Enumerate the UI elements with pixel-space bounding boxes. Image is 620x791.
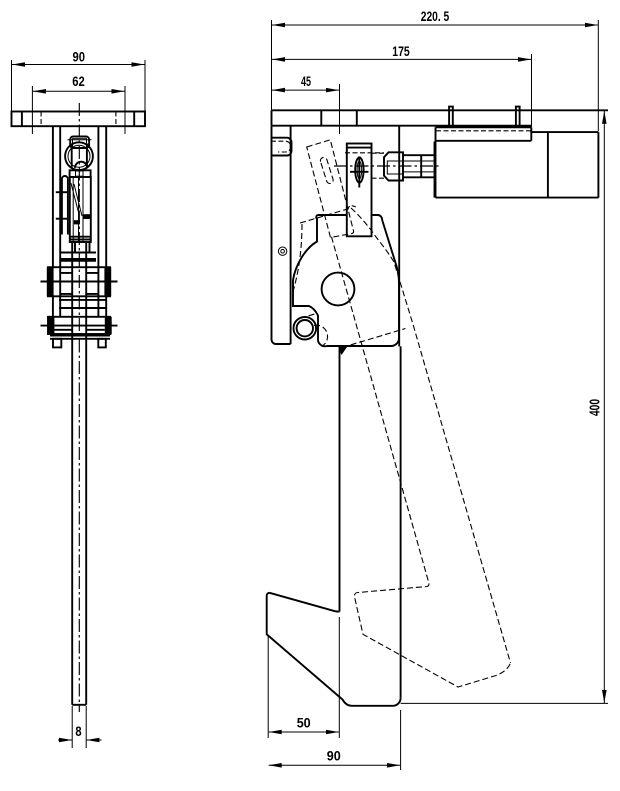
- svg-text:400: 400: [587, 399, 604, 416]
- svg-text:175: 175: [392, 43, 410, 59]
- svg-text:8: 8: [75, 723, 81, 739]
- svg-text:220. 5: 220. 5: [421, 8, 450, 24]
- svg-text:90: 90: [327, 748, 341, 764]
- svg-text:90: 90: [73, 49, 86, 65]
- svg-text:62: 62: [72, 73, 85, 89]
- svg-text:45: 45: [301, 73, 311, 89]
- svg-text:50: 50: [297, 715, 311, 731]
